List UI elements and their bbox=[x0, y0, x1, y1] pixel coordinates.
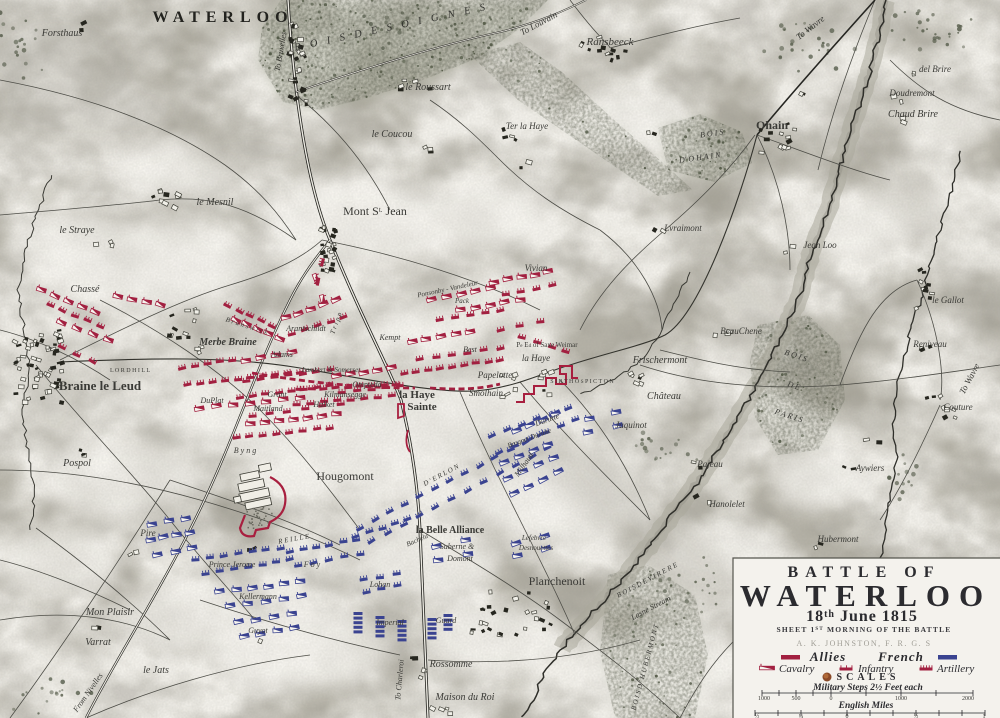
svg-text:Braine le Leud: Braine le Leud bbox=[59, 378, 142, 393]
svg-text:le Straye: le Straye bbox=[59, 225, 95, 236]
svg-text:0: 0 bbox=[830, 696, 833, 702]
svg-text:Ohain: Ohain bbox=[756, 118, 788, 132]
svg-text:½: ½ bbox=[914, 713, 919, 718]
svg-text:le Gallot: le Gallot bbox=[932, 295, 964, 305]
svg-text:Prince Jerome: Prince Jerome bbox=[208, 560, 256, 569]
svg-text:S I R T H O S P I C T O N: S I R T H O S P I C T O N bbox=[550, 379, 614, 385]
svg-text:Hubermont: Hubermont bbox=[817, 534, 859, 544]
svg-text:Kilmansegge: Kilmansegge bbox=[323, 390, 366, 399]
svg-text:Kempt: Kempt bbox=[379, 333, 402, 342]
svg-text:Pospol: Pospol bbox=[62, 458, 91, 469]
svg-text:Allies: Allies bbox=[809, 649, 846, 664]
svg-text:Planchenoit: Planchenoit bbox=[529, 574, 586, 588]
svg-text:Pe Ed of Saxe Weimar: Pe Ed of Saxe Weimar bbox=[516, 341, 578, 349]
svg-text:Ter la Haye: Ter la Haye bbox=[506, 121, 548, 131]
svg-text:Lvraimont: Lvraimont bbox=[663, 223, 702, 233]
svg-text:Papelotte: Papelotte bbox=[477, 370, 513, 380]
svg-text:Jaquinot: Jaquinot bbox=[615, 420, 647, 430]
svg-text:Artillery: Artillery bbox=[936, 663, 974, 675]
svg-text:BeauChene: BeauChene bbox=[720, 326, 761, 336]
svg-text:English Miles: English Miles bbox=[838, 701, 894, 711]
svg-text:DuPlat: DuPlat bbox=[199, 396, 224, 405]
svg-text:Hanolelet: Hanolelet bbox=[708, 499, 745, 509]
svg-text:Château: Château bbox=[647, 391, 681, 402]
svg-text:Mon Plaisir: Mon Plaisir bbox=[85, 607, 134, 618]
svg-text:Reniveau: Reniveau bbox=[912, 339, 947, 349]
svg-text:Suberne &: Suberne & bbox=[440, 542, 475, 551]
svg-text:Guard: Guard bbox=[436, 616, 458, 625]
svg-text:Merbe Braine: Merbe Braine bbox=[198, 337, 257, 348]
svg-text:Kellermann: Kellermann bbox=[238, 592, 277, 601]
svg-text:Pire: Pire bbox=[139, 528, 155, 538]
svg-text:¼: ¼ bbox=[799, 714, 804, 718]
svg-text:18th June 1815: 18th June 1815 bbox=[806, 608, 918, 625]
svg-text:Grant: Grant bbox=[267, 390, 287, 399]
svg-text:Vivian: Vivian bbox=[525, 263, 548, 273]
svg-text:1: 1 bbox=[983, 714, 986, 718]
svg-text:Couture: Couture bbox=[943, 402, 972, 412]
svg-text:Aywiers: Aywiers bbox=[855, 463, 885, 473]
svg-text:Chaud Brire: Chaud Brire bbox=[888, 109, 938, 120]
svg-text:Mont St. Jean: Mont St. Jean bbox=[343, 204, 407, 218]
svg-text:Lambert & Somerset: Lambert & Somerset bbox=[301, 366, 361, 374]
svg-text:del Brire: del Brire bbox=[919, 64, 951, 74]
svg-text:WATERLOO: WATERLOO bbox=[152, 9, 293, 26]
svg-text:Smolhain: Smolhain bbox=[469, 388, 504, 398]
svg-text:Ompteda: Ompteda bbox=[352, 380, 381, 389]
svg-text:Best: Best bbox=[463, 345, 478, 354]
svg-text:le Coucou: le Coucou bbox=[372, 129, 413, 140]
svg-text:le Jats: le Jats bbox=[143, 665, 169, 676]
svg-text:Rossomme: Rossomme bbox=[429, 659, 473, 670]
svg-text:le Mesnil: le Mesnil bbox=[197, 197, 234, 208]
svg-text:Jean Loo: Jean Loo bbox=[803, 240, 837, 250]
svg-text:Arantschildt: Arantschildt bbox=[285, 324, 326, 333]
svg-text:SCALES: SCALES bbox=[837, 672, 900, 683]
svg-text:Imperial: Imperial bbox=[375, 618, 404, 627]
svg-text:2000: 2000 bbox=[962, 696, 974, 702]
svg-text:Pajeau: Pajeau bbox=[696, 459, 723, 469]
svg-text:Guyot: Guyot bbox=[248, 626, 268, 635]
svg-text:F o y: F o y bbox=[303, 560, 321, 569]
svg-text:500: 500 bbox=[792, 696, 801, 702]
svg-text:Frischermont: Frischermont bbox=[632, 355, 688, 366]
svg-text:Forsthaus: Forsthaus bbox=[41, 28, 83, 39]
svg-text:Maitland: Maitland bbox=[252, 404, 283, 413]
svg-text:le Roussart: le Roussart bbox=[405, 82, 451, 93]
svg-text:L O R D H I L L: L O R D H I L L bbox=[110, 368, 150, 374]
svg-text:Pack: Pack bbox=[454, 297, 470, 305]
svg-text:Hougomont: Hougomont bbox=[316, 469, 374, 483]
svg-text:Halket: Halket bbox=[312, 400, 335, 409]
svg-text:Ransbeeck: Ransbeeck bbox=[585, 36, 634, 48]
svg-text:Desnouettes: Desnouettes bbox=[518, 544, 553, 552]
svg-text:1000: 1000 bbox=[758, 696, 770, 702]
svg-text:Cavalry: Cavalry bbox=[779, 663, 815, 675]
svg-text:la Haye: la Haye bbox=[399, 389, 435, 401]
svg-text:1000: 1000 bbox=[895, 696, 907, 702]
svg-text:la Belle Alliance: la Belle Alliance bbox=[416, 525, 485, 536]
svg-text:Sainte: Sainte bbox=[407, 401, 436, 413]
svg-text:A. K. JOHNSTON, F. R. G. S: A. K. JOHNSTON, F. R. G. S bbox=[796, 639, 931, 648]
svg-text:Chassé: Chassé bbox=[71, 284, 100, 295]
svg-text:French: French bbox=[877, 649, 924, 664]
svg-text:Military Steps 2½ Feet each: Military Steps 2½ Feet each bbox=[812, 683, 923, 693]
svg-text:Domont: Domont bbox=[446, 554, 474, 563]
svg-text:Lefebvre: Lefebvre bbox=[521, 534, 546, 542]
svg-text:la Haye: la Haye bbox=[522, 353, 550, 363]
svg-text:B y n g: B y n g bbox=[234, 446, 256, 455]
svg-text:SHEET 1ST MORNING OF THE BATTL: SHEET 1ST MORNING OF THE BATTLE bbox=[777, 625, 952, 634]
svg-text:Varrat: Varrat bbox=[85, 637, 111, 648]
svg-text:0: 0 bbox=[846, 714, 849, 718]
svg-text:Maison du Roi: Maison du Roi bbox=[435, 692, 495, 703]
svg-text:Loban: Loban bbox=[369, 580, 390, 589]
svg-text:Doudremont: Doudremont bbox=[888, 88, 935, 98]
svg-text:½: ½ bbox=[755, 713, 760, 718]
svg-text:Adams: Adams bbox=[270, 350, 293, 359]
